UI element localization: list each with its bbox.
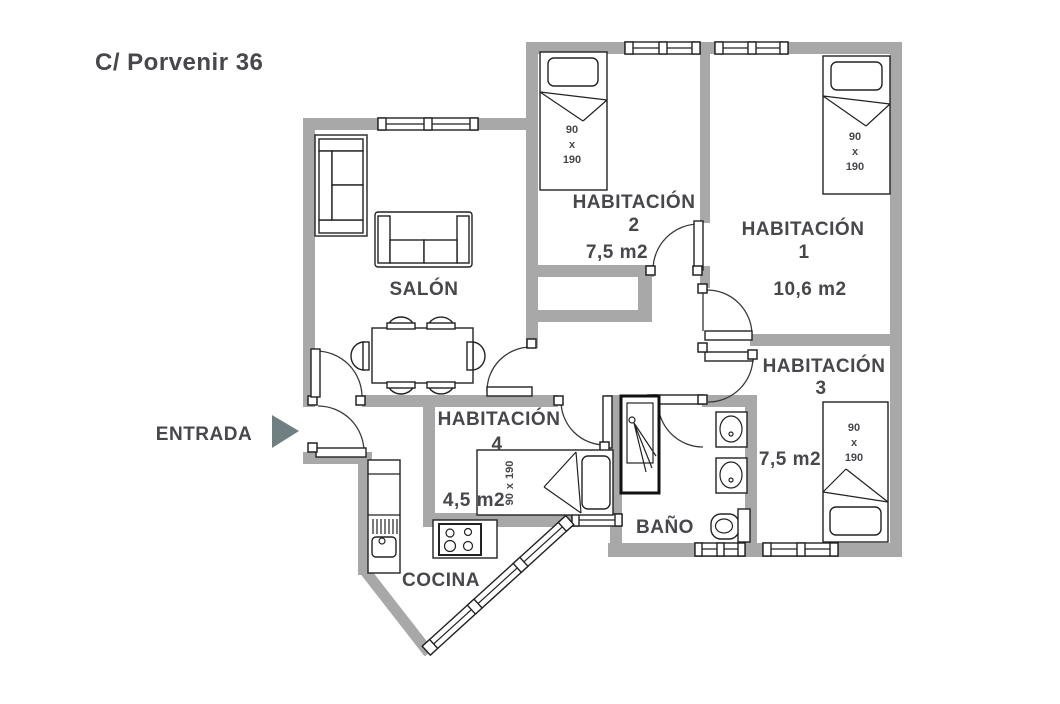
habitacion3-area: 7,5 m2 bbox=[759, 449, 821, 470]
habitacion4-number: 4 bbox=[491, 434, 502, 455]
bed-size-h3-length: 190 bbox=[845, 452, 863, 464]
door-habitacion4 bbox=[554, 396, 612, 451]
bed-size-h4: 90x190 bbox=[504, 461, 516, 506]
sofa-horizontal bbox=[375, 212, 472, 267]
bed-habitacion2: 90 x 190 bbox=[540, 52, 607, 190]
label-habitacion2: HABITACIÓN 2 7,5 m2 bbox=[573, 191, 696, 263]
habitacion2-number: 2 bbox=[628, 215, 639, 236]
bed-size-h2-length: 190 bbox=[563, 154, 581, 166]
shower bbox=[621, 396, 659, 493]
bed-size-h4-width: 90 bbox=[504, 493, 516, 505]
habitacion2-name: HABITACIÓN bbox=[573, 191, 696, 213]
window-habitacion4 bbox=[572, 514, 622, 526]
salon-name: SALÓN bbox=[390, 278, 459, 300]
bathroom-sink-2 bbox=[716, 458, 747, 493]
window-habitacion3 bbox=[763, 543, 838, 556]
habitacion1-area: 10,6 m2 bbox=[773, 279, 846, 300]
stove bbox=[433, 520, 497, 558]
habitacion3-number: 3 bbox=[815, 378, 826, 399]
entrance-label: ENTRADA bbox=[156, 424, 252, 445]
bed-habitacion3: 90 x 190 bbox=[823, 402, 888, 542]
entrance: ENTRADA bbox=[156, 415, 299, 448]
cocina-name: COCINA bbox=[402, 570, 480, 591]
bed-size-h1-sep: x bbox=[852, 146, 859, 158]
habitacion1-number: 1 bbox=[798, 242, 809, 263]
kitchen-counter-sink bbox=[368, 460, 400, 573]
bano-name: BAÑO bbox=[636, 516, 694, 538]
label-salon: SALÓN bbox=[390, 278, 459, 300]
window-salon bbox=[378, 118, 478, 130]
label-habitacion1: HABITACIÓN 1 10,6 m2 bbox=[742, 218, 865, 300]
habitacion2-area: 7,5 m2 bbox=[586, 242, 648, 263]
label-cocina: COCINA bbox=[402, 570, 480, 591]
window-habitacion2 bbox=[625, 42, 700, 54]
floorplan-svg: 90 x 190 90 x 190 90 x 190 90x190 bbox=[0, 0, 1060, 704]
window-habitacion1 bbox=[715, 42, 788, 54]
label-bano: BAÑO bbox=[636, 516, 694, 538]
habitacion3-name: HABITACIÓN bbox=[763, 355, 886, 377]
bed-size-h4-length: 190 bbox=[504, 461, 516, 479]
bed-size-h2-width: 90 bbox=[566, 124, 578, 136]
door-salon-right bbox=[487, 339, 536, 396]
sink-basin bbox=[372, 537, 396, 557]
plan-title: C/ Porvenir 36 bbox=[95, 49, 263, 76]
bed-size-h3-width: 90 bbox=[848, 422, 860, 434]
habitacion4-name: HABITACIÓN bbox=[438, 408, 561, 430]
habitacion1-name: HABITACIÓN bbox=[742, 218, 865, 240]
entrance-arrow-icon bbox=[272, 415, 299, 448]
bed-size-h1-width: 90 bbox=[849, 131, 861, 143]
bed-size-h4-sep: x bbox=[504, 482, 516, 489]
floorplan-page: 90 x 190 90 x 190 90 x 190 90x190 bbox=[0, 0, 1060, 704]
habitacion4-area: 4,5 m2 bbox=[443, 490, 505, 511]
door-habitacion2 bbox=[646, 221, 703, 275]
dining-table-set bbox=[351, 317, 485, 394]
sink-drainer-lines bbox=[373, 519, 397, 534]
door-habitacion3 bbox=[698, 343, 757, 402]
bed-size-h2-sep: x bbox=[569, 139, 576, 151]
toilet bbox=[711, 509, 750, 542]
bed-habitacion1: 90 x 190 bbox=[823, 56, 890, 194]
door-habitacion1 bbox=[698, 284, 752, 340]
sofa-vertical bbox=[315, 135, 367, 236]
window-bano bbox=[695, 543, 745, 556]
bed-size-h3-sep: x bbox=[851, 437, 858, 449]
dining-table bbox=[372, 328, 473, 383]
bathroom-sink-1 bbox=[716, 412, 747, 447]
bed-size-h1-length: 190 bbox=[846, 161, 864, 173]
